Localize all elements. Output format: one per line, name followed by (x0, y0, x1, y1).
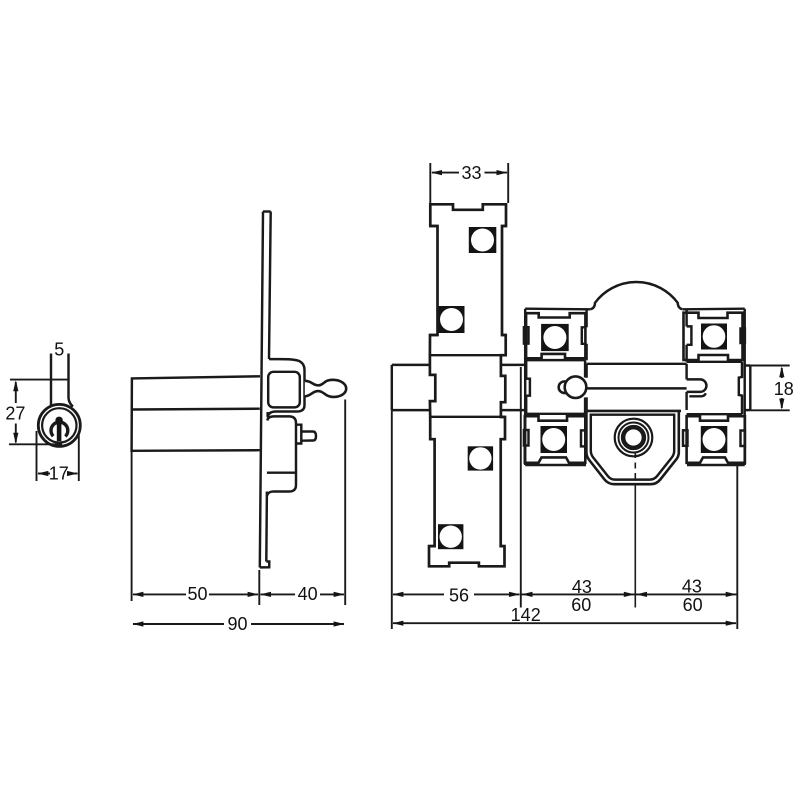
svg-text:142: 142 (511, 605, 541, 625)
svg-text:60: 60 (683, 595, 703, 615)
svg-text:50: 50 (187, 584, 207, 604)
svg-text:5: 5 (54, 340, 64, 360)
svg-text:43: 43 (572, 577, 592, 597)
svg-text:27: 27 (5, 404, 25, 424)
svg-text:17: 17 (49, 464, 69, 484)
svg-text:40: 40 (298, 584, 318, 604)
svg-text:18: 18 (774, 379, 794, 399)
svg-text:60: 60 (571, 595, 591, 615)
svg-text:90: 90 (227, 614, 247, 634)
svg-text:33: 33 (461, 163, 481, 183)
svg-text:43: 43 (682, 577, 702, 597)
svg-text:56: 56 (449, 585, 469, 605)
